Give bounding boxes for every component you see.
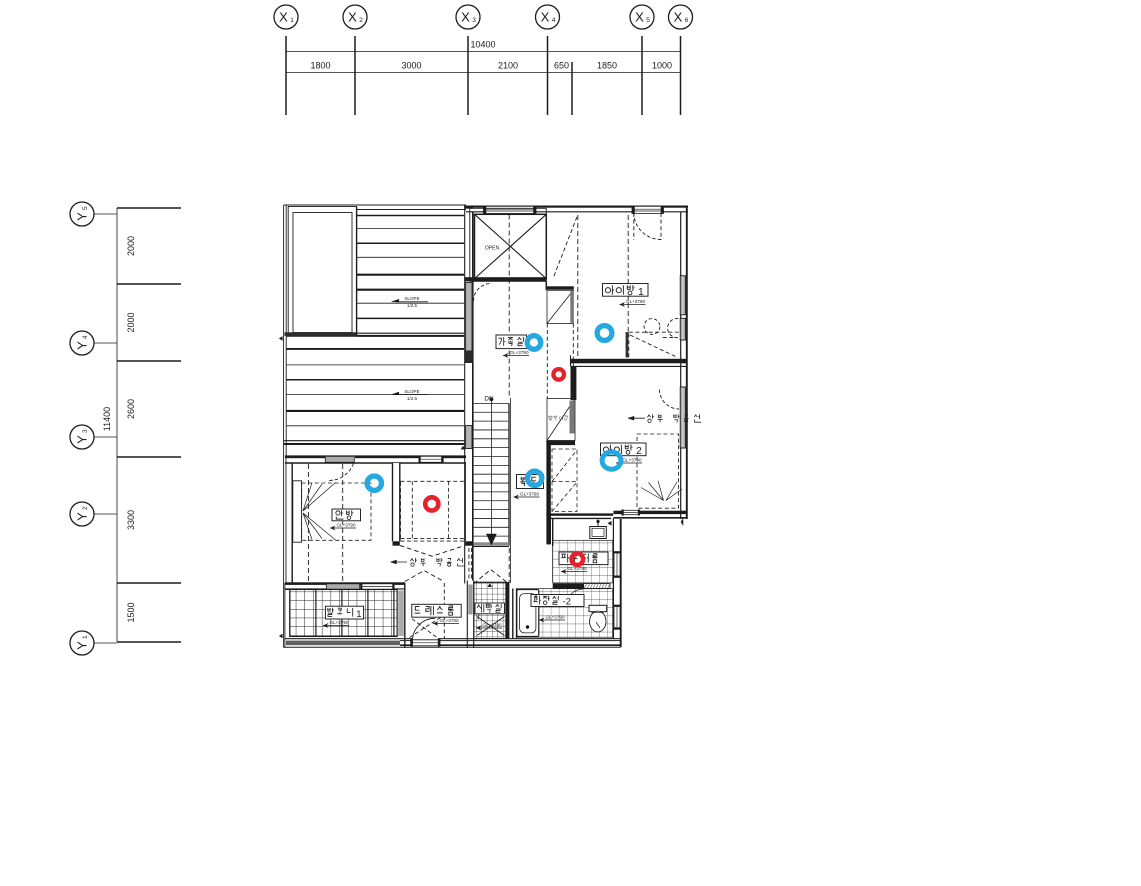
svg-text:650: 650 xyxy=(554,61,569,71)
svg-text:4: 4 xyxy=(82,335,89,339)
svg-text:2100: 2100 xyxy=(498,61,518,71)
svg-text:2000: 2000 xyxy=(126,312,136,332)
svg-text:X: X xyxy=(635,10,644,25)
svg-text:X: X xyxy=(461,10,470,25)
svg-text:1800: 1800 xyxy=(310,61,330,71)
svg-text:3000: 3000 xyxy=(401,61,421,71)
svg-text:OPEN: OPEN xyxy=(485,246,500,252)
svg-text:-2: -2 xyxy=(563,597,571,608)
svg-text:5: 5 xyxy=(82,206,89,210)
svg-text:Y: Y xyxy=(75,435,90,444)
svg-text:1: 1 xyxy=(356,609,361,620)
svg-text:2: 2 xyxy=(82,506,89,510)
svg-text:X: X xyxy=(674,10,683,25)
svg-text:1: 1 xyxy=(638,286,644,298)
svg-text:3: 3 xyxy=(472,17,476,24)
svg-text:2: 2 xyxy=(359,17,363,24)
svg-text:4: 4 xyxy=(552,17,556,24)
svg-text:3: 3 xyxy=(82,429,89,433)
svg-text:11400: 11400 xyxy=(102,407,112,431)
svg-text:X: X xyxy=(541,10,550,25)
svg-text:1500: 1500 xyxy=(126,602,136,622)
svg-text:Y: Y xyxy=(75,641,90,650)
svg-text:Y: Y xyxy=(75,512,90,521)
svg-text:6: 6 xyxy=(685,17,689,24)
svg-text:5: 5 xyxy=(646,17,650,24)
svg-text:1/2.5: 1/2.5 xyxy=(407,303,418,308)
svg-text:SLOPE: SLOPE xyxy=(404,296,419,301)
svg-text:1850: 1850 xyxy=(597,61,617,71)
svg-text:1/2.6: 1/2.6 xyxy=(407,396,418,401)
svg-text:X: X xyxy=(348,10,357,25)
svg-text:SLOPE: SLOPE xyxy=(404,389,419,394)
svg-text:2: 2 xyxy=(636,445,642,457)
svg-text:Y: Y xyxy=(75,341,90,350)
svg-text:2600: 2600 xyxy=(126,399,136,419)
svg-text:3300: 3300 xyxy=(126,510,136,530)
svg-text:1: 1 xyxy=(290,17,294,24)
svg-text:2000: 2000 xyxy=(126,236,136,256)
svg-text:10400: 10400 xyxy=(470,40,495,50)
svg-text:1: 1 xyxy=(82,635,89,639)
svg-text:X: X xyxy=(279,10,288,25)
svg-text:Y: Y xyxy=(75,212,90,221)
svg-text:1000: 1000 xyxy=(652,61,672,71)
svg-text:DN: DN xyxy=(484,396,494,403)
